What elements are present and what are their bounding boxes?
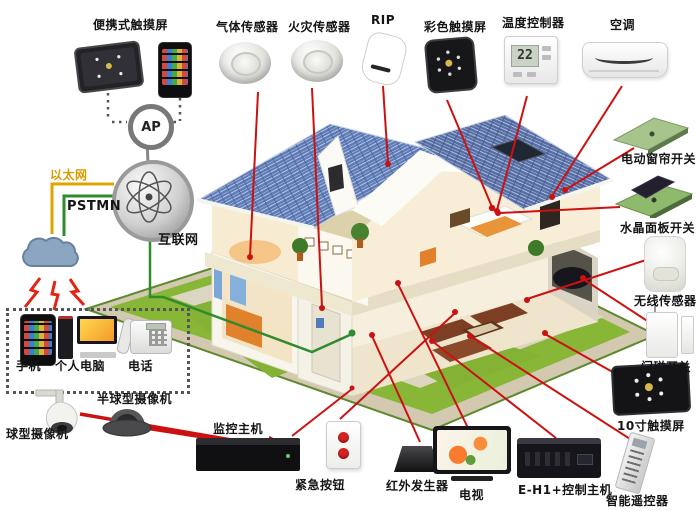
color-touchscreen-label: 彩色触摸屏 [424, 18, 487, 35]
control-host-label: E-H1+控制主机 [518, 481, 612, 498]
air-conditioner-label: 空调 [610, 16, 635, 33]
temperature-controller-image: 22 [504, 36, 558, 84]
dome-camera-image [101, 402, 153, 444]
personal-computer-label: 个人电脑 [55, 357, 105, 374]
curtain-switch-label: 电动窗帘开关 [621, 150, 696, 167]
speed-dome-camera-label: 球型摄像机 [6, 425, 69, 442]
door-magnet-switch-label: 门磁开关 [641, 358, 691, 375]
ap-node: AP [128, 104, 174, 150]
control-host-image [517, 438, 601, 478]
personal-computer-image [58, 314, 120, 360]
smart-remote-label: 智能遥控器 [606, 492, 669, 509]
emergency-button-image [326, 421, 361, 469]
portable-tablet-image [76, 44, 142, 90]
smart-remote-image [622, 434, 648, 492]
crystal-panel-switch-image [614, 172, 694, 218]
pstn-label: PSTMN [67, 199, 121, 214]
surveillance-host-image [196, 438, 300, 471]
thermostat-reading: 22 [511, 45, 539, 67]
portable-phone-image [158, 42, 192, 98]
tv-image [433, 426, 511, 474]
telephone-label: 电话 [128, 357, 153, 374]
tv-label: 电视 [459, 486, 484, 503]
ethernet-label: 以太网 [50, 166, 88, 183]
wireless-sensor-label: 无线传感器 [634, 292, 697, 309]
lightning-bolts [25, 278, 84, 310]
red-device-lines [250, 86, 652, 448]
temperature-controller-label: 温度控制器 [502, 14, 565, 31]
gas-sensor-image [219, 42, 271, 84]
internet-label: 互联网 [158, 229, 199, 248]
emergency-button-label: 紧急按钮 [295, 476, 345, 493]
pir-sensor-image [364, 34, 404, 84]
green-endpoint-dot [349, 330, 356, 337]
atom-icon [112, 160, 186, 234]
curtain-switch-image [610, 112, 692, 154]
dome-camera-label: 半球型摄像机 [97, 390, 172, 407]
surveillance-host-label: 监控主机 [213, 420, 263, 437]
smart-home-system-diagram: 便携式触摸屏 气体传感器 火灾传感器 RIP 彩色触摸屏 温度控制器 空调 电动… [0, 0, 700, 513]
mobile-phone-label: 手机 [16, 357, 41, 374]
door-magnet-switch-image [646, 304, 696, 356]
portable-touchscreen-label: 便携式触摸屏 [93, 16, 168, 33]
pir-sensor-label: RIP [371, 13, 395, 27]
air-conditioner-image [582, 42, 668, 78]
fire-sensor-image [291, 40, 343, 82]
crystal-panel-switch-label: 水晶面板开关 [620, 219, 695, 236]
telephone-image [120, 316, 172, 356]
color-touchscreen-image [426, 38, 476, 92]
fire-sensor-label: 火灾传感器 [288, 18, 351, 35]
cloud-icon [20, 230, 84, 278]
red-endpoint-dots [247, 161, 586, 391]
ap-text: AP [141, 120, 161, 135]
touchscreen-10inch-label: 10寸触摸屏 [617, 417, 685, 434]
wireless-sensor-image [644, 236, 686, 292]
gas-sensor-label: 气体传感器 [216, 18, 279, 35]
ir-generator-label: 红外发生器 [386, 477, 449, 494]
